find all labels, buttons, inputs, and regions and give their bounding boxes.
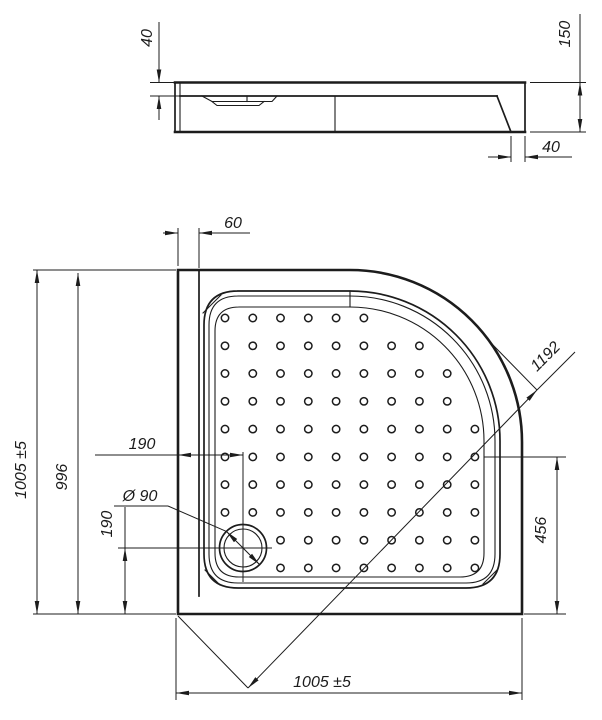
plan-rim-outer [204,291,500,588]
anti-slip-dot [277,509,284,516]
technical-drawing-page: 40 150 40 [0,0,602,720]
anti-slip-dot [444,453,451,460]
dim-corner-to-bottom-label: 456 [533,517,550,544]
anti-slip-dot [444,564,451,571]
anti-slip-dot [360,370,367,377]
anti-slip-dot [416,537,423,544]
anti-slip-dot [221,453,228,460]
anti-slip-dot [305,314,312,321]
dim-rim-height-label: 40 [139,29,156,47]
anti-slip-dot [305,453,312,460]
anti-slip-dot [360,314,367,321]
anti-slip-dot [444,509,451,516]
dim-drain-from-bottom-label: 190 [99,511,116,538]
plan-outer-boundary [178,270,522,614]
dot-pattern [221,314,478,571]
dim-diagonal-label: 1192 [528,339,564,375]
dim-total-height-label: 150 [557,21,574,48]
anti-slip-dot [360,453,367,460]
plan-rim-middle [209,296,495,583]
anti-slip-dot [305,481,312,488]
anti-slip-dot [277,398,284,405]
anti-slip-dot [416,509,423,516]
anti-slip-dot [416,564,423,571]
anti-slip-dot [360,342,367,349]
dim-drain-from-left-label: 190 [129,436,156,453]
anti-slip-dot [305,425,312,432]
anti-slip-dot [332,564,339,571]
anti-slip-dot [388,342,395,349]
anti-slip-dot [332,314,339,321]
anti-slip-dot [305,537,312,544]
anti-slip-dot [416,453,423,460]
anti-slip-dot [444,537,451,544]
anti-slip-dot [221,370,228,377]
anti-slip-dot [305,370,312,377]
anti-slip-dot [360,537,367,544]
anti-slip-dot [360,481,367,488]
dim-flange-width: 60 [163,215,250,268]
dim-drain-diameter: Ø 90 [114,488,260,565]
anti-slip-dot [332,537,339,544]
dim-height-inner-label: 996 [54,464,71,491]
anti-slip-dot [388,509,395,516]
anti-slip-dot [388,453,395,460]
dim-corner-to-bottom: 456 [484,457,566,614]
dim-drain-diameter-label: Ø 90 [122,488,158,505]
anti-slip-dot [471,509,478,516]
anti-slip-dot [249,509,256,516]
dim-width-overall-label: 1005 ±5 [293,674,351,691]
anti-slip-dot [332,425,339,432]
anti-slip-dot [277,425,284,432]
dim-flange-width-label: 60 [224,215,242,232]
anti-slip-dot [332,398,339,405]
anti-slip-dot [416,481,423,488]
anti-slip-dot [471,537,478,544]
anti-slip-dot [277,370,284,377]
anti-slip-dot [221,509,228,516]
anti-slip-dot [277,314,284,321]
plan-view: 60 1005 ±5 996 190 Ø 90 [13,215,575,700]
anti-slip-dot [277,481,284,488]
dim-drain-from-bottom: 190 [99,507,125,614]
anti-slip-dot [471,481,478,488]
anti-slip-dot [360,398,367,405]
anti-slip-dot [416,425,423,432]
anti-slip-dot [249,370,256,377]
anti-slip-dot [360,425,367,432]
anti-slip-dot [305,398,312,405]
anti-slip-dot [221,425,228,432]
anti-slip-dot [277,342,284,349]
anti-slip-dot [305,564,312,571]
anti-slip-dot [249,314,256,321]
dim-total-height: 150 [530,14,586,132]
anti-slip-dot [388,564,395,571]
anti-slip-dot [277,564,284,571]
anti-slip-dot [388,370,395,377]
anti-slip-dot [444,370,451,377]
anti-slip-dot [388,398,395,405]
anti-slip-dot [360,509,367,516]
anti-slip-dot [416,398,423,405]
anti-slip-dot [221,342,228,349]
shower-tray-drawing: 40 150 40 [0,0,602,720]
anti-slip-dot [444,398,451,405]
anti-slip-dot [416,342,423,349]
anti-slip-dot [249,398,256,405]
side-drain-recess-inner [212,102,264,106]
anti-slip-dot [249,453,256,460]
dim-drain-from-left: 190 [95,436,243,455]
anti-slip-dot [332,370,339,377]
dim-width-overall: 1005 ±5 [176,618,522,700]
dim-wall-offset: 40 [488,136,572,162]
dim-wall-offset-label: 40 [542,139,560,156]
anti-slip-dot [332,342,339,349]
anti-slip-dot [277,537,284,544]
anti-slip-dot [221,398,228,405]
anti-slip-dot [305,509,312,516]
anti-slip-dot [332,453,339,460]
dim-height-inner: 996 [54,273,78,614]
anti-slip-dot [221,481,228,488]
side-right-inner-slant [497,96,511,132]
anti-slip-dot [444,425,451,432]
anti-slip-dot [332,481,339,488]
anti-slip-dot [249,481,256,488]
dim-height-overall-label: 1005 ±5 [13,441,30,499]
anti-slip-dot [471,564,478,571]
anti-slip-dot [277,453,284,460]
anti-slip-dot [416,370,423,377]
anti-slip-dot [249,425,256,432]
anti-slip-dot [332,509,339,516]
side-view: 40 150 40 [139,14,586,162]
anti-slip-dot [388,481,395,488]
anti-slip-dot [221,314,228,321]
anti-slip-dot [388,425,395,432]
anti-slip-dot [305,342,312,349]
anti-slip-dot [249,342,256,349]
anti-slip-dot [471,425,478,432]
